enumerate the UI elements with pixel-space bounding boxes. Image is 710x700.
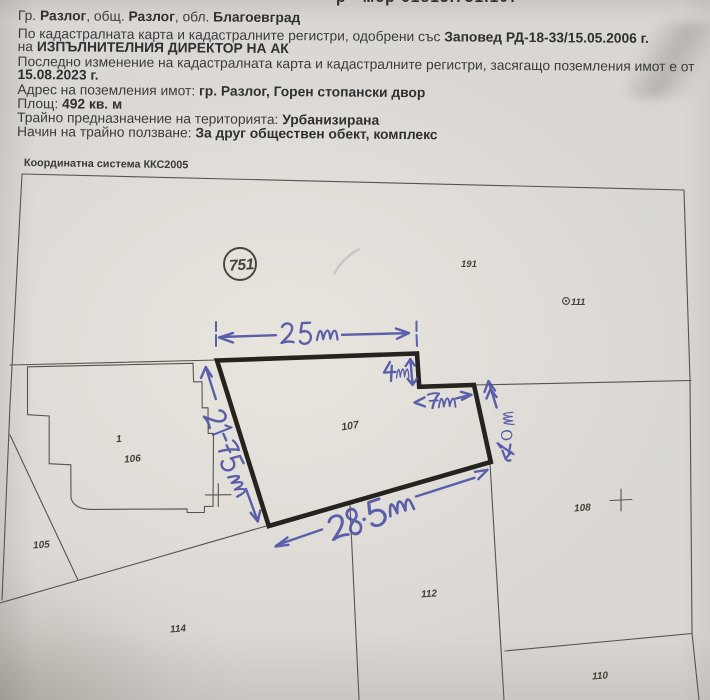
svg-text:110: 110: [592, 670, 609, 682]
svg-text:112: 112: [421, 588, 438, 600]
svg-text:751: 751: [229, 256, 255, 275]
svg-text:106: 106: [124, 453, 142, 465]
svg-text:107: 107: [340, 419, 360, 434]
svg-text:111: 111: [571, 297, 585, 308]
svg-text:105: 105: [33, 539, 51, 551]
svg-text:114: 114: [170, 623, 187, 635]
svg-text:191: 191: [461, 259, 477, 270]
svg-text:108: 108: [574, 502, 592, 514]
svg-text:1: 1: [116, 434, 123, 445]
